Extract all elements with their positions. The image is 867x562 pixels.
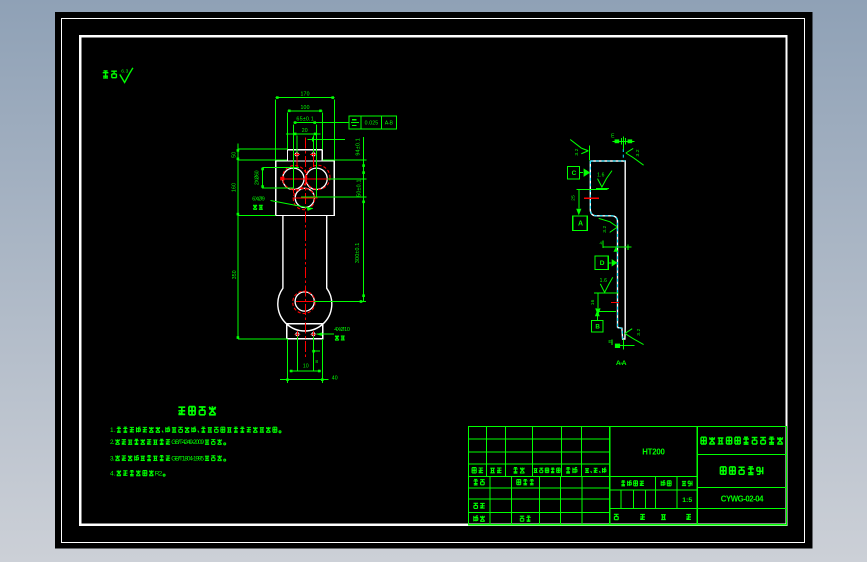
svg-text:A: A bbox=[578, 221, 583, 228]
svg-text:GB/T4249-2009: GB/T4249-2009 bbox=[171, 439, 204, 446]
svg-text:2.: 2. bbox=[110, 439, 115, 446]
svg-text:4XØ10: 4XØ10 bbox=[334, 327, 350, 333]
svg-text:170: 170 bbox=[301, 91, 310, 97]
svg-text:160: 160 bbox=[231, 183, 237, 192]
svg-text:D: D bbox=[600, 260, 605, 267]
svg-text:1:5: 1:5 bbox=[682, 497, 692, 504]
svg-text:3.2: 3.2 bbox=[636, 328, 642, 335]
svg-text:CYWG-02-04: CYWG-02-04 bbox=[721, 494, 764, 503]
svg-text:1.6: 1.6 bbox=[600, 278, 608, 284]
svg-text:94±0.1: 94±0.1 bbox=[355, 138, 361, 155]
svg-text:6.3: 6.3 bbox=[121, 68, 128, 74]
svg-text:1.: 1. bbox=[110, 427, 116, 434]
svg-text:20: 20 bbox=[302, 128, 308, 134]
svg-text:8: 8 bbox=[315, 359, 318, 365]
svg-text:10: 10 bbox=[303, 364, 309, 370]
svg-text:GB/T1804-1995: GB/T1804-1995 bbox=[171, 455, 204, 462]
svg-text:C: C bbox=[572, 170, 577, 177]
svg-text:B: B bbox=[595, 324, 600, 331]
svg-text:2XØ60: 2XØ60 bbox=[255, 170, 261, 185]
svg-text:6XØ9: 6XØ9 bbox=[252, 196, 264, 202]
svg-text:25: 25 bbox=[570, 195, 576, 201]
svg-text:50: 50 bbox=[232, 152, 238, 158]
svg-text:A-A: A-A bbox=[616, 360, 627, 367]
svg-text:350: 350 bbox=[232, 270, 238, 279]
svg-text:R2: R2 bbox=[155, 470, 163, 477]
svg-text:3.2: 3.2 bbox=[574, 148, 580, 155]
svg-text:HT200: HT200 bbox=[642, 448, 665, 457]
svg-text:40: 40 bbox=[332, 376, 338, 382]
svg-text:300±0.1: 300±0.1 bbox=[355, 243, 361, 263]
svg-text:16: 16 bbox=[590, 299, 596, 305]
svg-text:4.: 4. bbox=[110, 470, 116, 477]
svg-text:50±0.1: 50±0.1 bbox=[356, 180, 362, 197]
svg-text:1.6: 1.6 bbox=[597, 172, 605, 178]
svg-text:E: E bbox=[608, 339, 611, 345]
svg-text:3.2: 3.2 bbox=[602, 225, 608, 232]
svg-text:A-B: A-B bbox=[385, 121, 394, 127]
svg-text:100: 100 bbox=[301, 105, 310, 111]
svg-text:65±0.1: 65±0.1 bbox=[296, 117, 313, 123]
svg-text:3.2: 3.2 bbox=[635, 149, 641, 156]
svg-text:3.: 3. bbox=[110, 455, 115, 462]
svg-text:0.025: 0.025 bbox=[365, 121, 379, 127]
